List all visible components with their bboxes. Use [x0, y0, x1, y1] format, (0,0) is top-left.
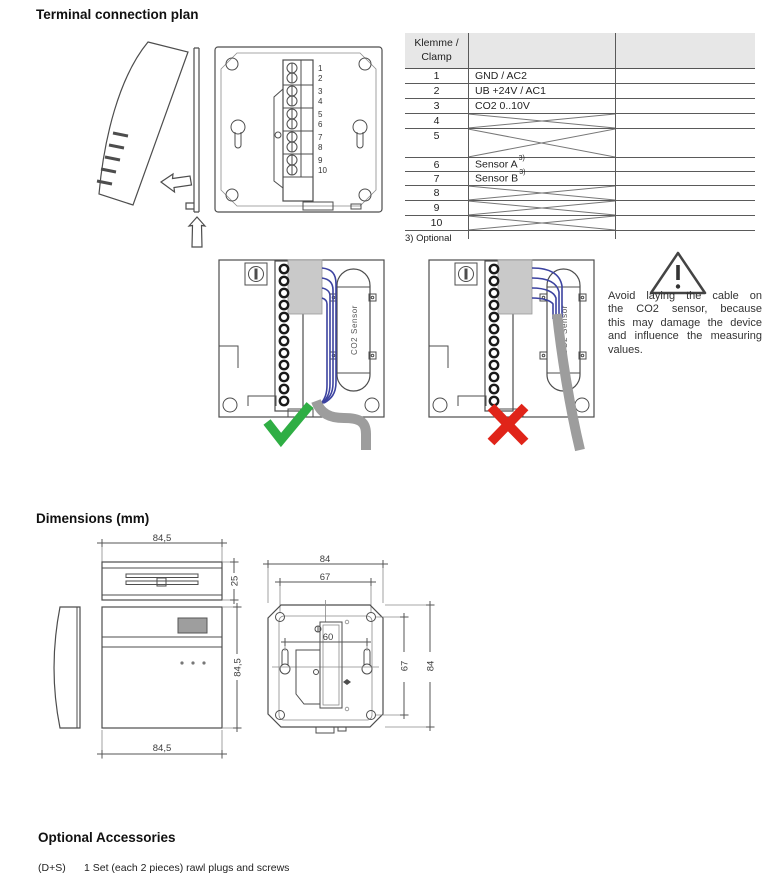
table-header-col3: [615, 33, 755, 68]
accessory-description: 1 Set (each 2 pieces) rawl plugs and scr…: [84, 862, 289, 874]
terminal-plan-title: Terminal connection plan: [36, 7, 199, 22]
arrow-up-icon: [189, 217, 205, 247]
crossed-out-cell: [468, 186, 615, 200]
table-footnote: 3) Optional: [405, 233, 451, 244]
keyhole-slots: [231, 120, 367, 148]
warning-line: the CO2 sensor, because: [608, 303, 762, 316]
center-arrows-icon: [343, 679, 351, 685]
terminal-number: 8: [318, 143, 323, 152]
dim-back-outer-height: 84: [385, 601, 437, 731]
dim-back-hole-height: 67: [376, 613, 411, 719]
svg-text:60: 60: [323, 632, 334, 643]
clamp-label: UB +24V / AC1: [475, 85, 546, 97]
svg-text:84: 84: [320, 554, 331, 565]
dim-front-height: 84,5: [222, 603, 244, 732]
table-row: 7 Sensor B3): [405, 172, 755, 186]
accessories-title: Optional Accessories: [38, 830, 176, 845]
clamp-number: 6: [405, 159, 468, 171]
clamp-number: 5: [405, 129, 468, 142]
terminal-block-drawing: 1 2 3 4 5 6 7 8 9 10: [274, 60, 327, 201]
top-view-drawing: [102, 562, 222, 600]
gray-cable: [316, 401, 366, 450]
connector-block: [498, 260, 532, 314]
clamp-number: 9: [405, 202, 468, 214]
co2-sensor-label: CO2 Sensor: [350, 305, 359, 355]
footnote-ref: 3): [519, 155, 525, 162]
clamp-label: Sensor A3): [475, 158, 525, 171]
terminal-number: 10: [318, 166, 327, 175]
rotary-switch-icon: [245, 263, 267, 285]
terminal-number: 7: [318, 133, 323, 142]
clamp-label: Sensor B3): [475, 172, 525, 185]
co2-sensor-capsule: CO2 Sensor: [330, 269, 376, 391]
rotary-switch-icon: [455, 263, 477, 285]
clamp-number: 4: [405, 115, 468, 127]
table-column-divider: [468, 33, 469, 239]
red-cross-icon: [491, 407, 525, 442]
table-row: 6 Sensor A3): [405, 158, 755, 172]
side-view-drawing: [54, 607, 80, 728]
terminal-number: 9: [318, 156, 323, 165]
dim-back-keyhole-width: 60: [281, 632, 371, 651]
terminal-number: 6: [318, 120, 323, 129]
accessory-code: (D+S): [38, 862, 84, 874]
clamp-number: 3: [405, 100, 468, 112]
footnote-ref: 3): [519, 169, 525, 176]
svg-text:84,5: 84,5: [153, 743, 172, 754]
mounting-plate-drawing: [186, 48, 199, 212]
clamp-number: 2: [405, 85, 468, 97]
terminal-strip: [275, 260, 322, 411]
table-row: 9: [405, 201, 755, 216]
wiring-diagram-correct: CO2 Sensor: [218, 256, 386, 452]
warning-line: values.: [608, 344, 762, 357]
terminal-strip: [485, 260, 532, 411]
header-line1: Klemme /: [405, 37, 468, 50]
terminal-number: 2: [318, 74, 323, 83]
svg-text:67: 67: [400, 661, 411, 672]
table-row: 8: [405, 186, 755, 201]
connector-block: [288, 260, 322, 314]
warning-text: Avoid laying the cable on the CO2 sensor…: [608, 290, 762, 357]
table-header-row: Klemme / Clamp: [405, 33, 755, 69]
clamp-number: 10: [405, 217, 468, 229]
back-plate-dimension-drawing: 84 67: [252, 542, 462, 772]
terminal-number-labels: 1 2 3 4 5 6 7 8 9 10: [318, 64, 327, 175]
svg-text:25: 25: [230, 576, 241, 587]
clamp-number: 7: [405, 173, 468, 185]
device-cover-drawing: [97, 42, 188, 205]
crossed-out-cell: [468, 114, 615, 128]
warning-line: this may damage the device: [608, 317, 762, 330]
table-header-clamp: Klemme / Clamp: [405, 37, 468, 63]
table-row: 10: [405, 216, 755, 231]
warning-line: and influence the measuring: [608, 330, 762, 343]
manual-page: Terminal connection plan: [0, 0, 770, 888]
svg-text:84,5: 84,5: [153, 533, 172, 544]
dim-top-depth: 25: [222, 558, 241, 604]
base-plate-drawing: 1 2 3 4 5 6 7 8 9 10: [215, 47, 382, 212]
clamp-number: 8: [405, 187, 468, 199]
terminal-number: 3: [318, 87, 323, 96]
header-line2: Clamp: [405, 51, 468, 64]
accessories-line: (D+S)1 Set (each 2 pieces) rawl plugs an…: [38, 862, 289, 874]
table-header-col2: [468, 33, 615, 68]
device-exploded-diagram: 1 2 3 4 5 6 7 8 9 10: [55, 35, 400, 250]
dim-top-width: 84,5: [97, 533, 227, 562]
terminal-table: Klemme / Clamp 1 GND / AC2 2 UB +24V / A…: [405, 33, 755, 231]
clamp-number: 1: [405, 70, 468, 82]
warning-line: Avoid laying the cable on: [608, 290, 762, 303]
front-view-drawing: [102, 607, 222, 728]
dimensions-title: Dimensions (mm): [36, 511, 149, 526]
display-window: [178, 618, 207, 633]
table-row: 2 UB +24V / AC1: [405, 84, 755, 99]
table-row: 4: [405, 114, 755, 129]
dim-front-width: 84,5: [97, 730, 227, 759]
keyhole-slots: [280, 649, 372, 674]
table-row: 3 CO2 0..10V: [405, 99, 755, 114]
table-row: 1 GND / AC2: [405, 69, 755, 84]
crossed-out-cell: [468, 129, 615, 157]
clamp-label: CO2 0..10V: [475, 100, 530, 112]
crossed-out-cell: [468, 216, 615, 230]
svg-text:67: 67: [320, 572, 331, 583]
clamp-label: GND / AC2: [475, 70, 527, 82]
table-column-divider: [615, 33, 616, 239]
dimension-views-drawing: 84,5 25: [36, 528, 256, 763]
svg-text:84: 84: [426, 661, 437, 672]
table-row: 5: [405, 129, 755, 158]
wiring-diagram-incorrect: CO2 Sensor: [428, 256, 596, 452]
crossed-out-cell: [468, 201, 615, 215]
blue-wires: [321, 268, 336, 404]
back-plate-outline: [268, 600, 383, 733]
terminal-number: 1: [318, 64, 323, 73]
arrow-left-icon: [161, 174, 192, 192]
svg-text:84,5: 84,5: [233, 658, 244, 677]
terminal-number: 5: [318, 110, 323, 119]
terminal-number: 4: [318, 97, 323, 106]
